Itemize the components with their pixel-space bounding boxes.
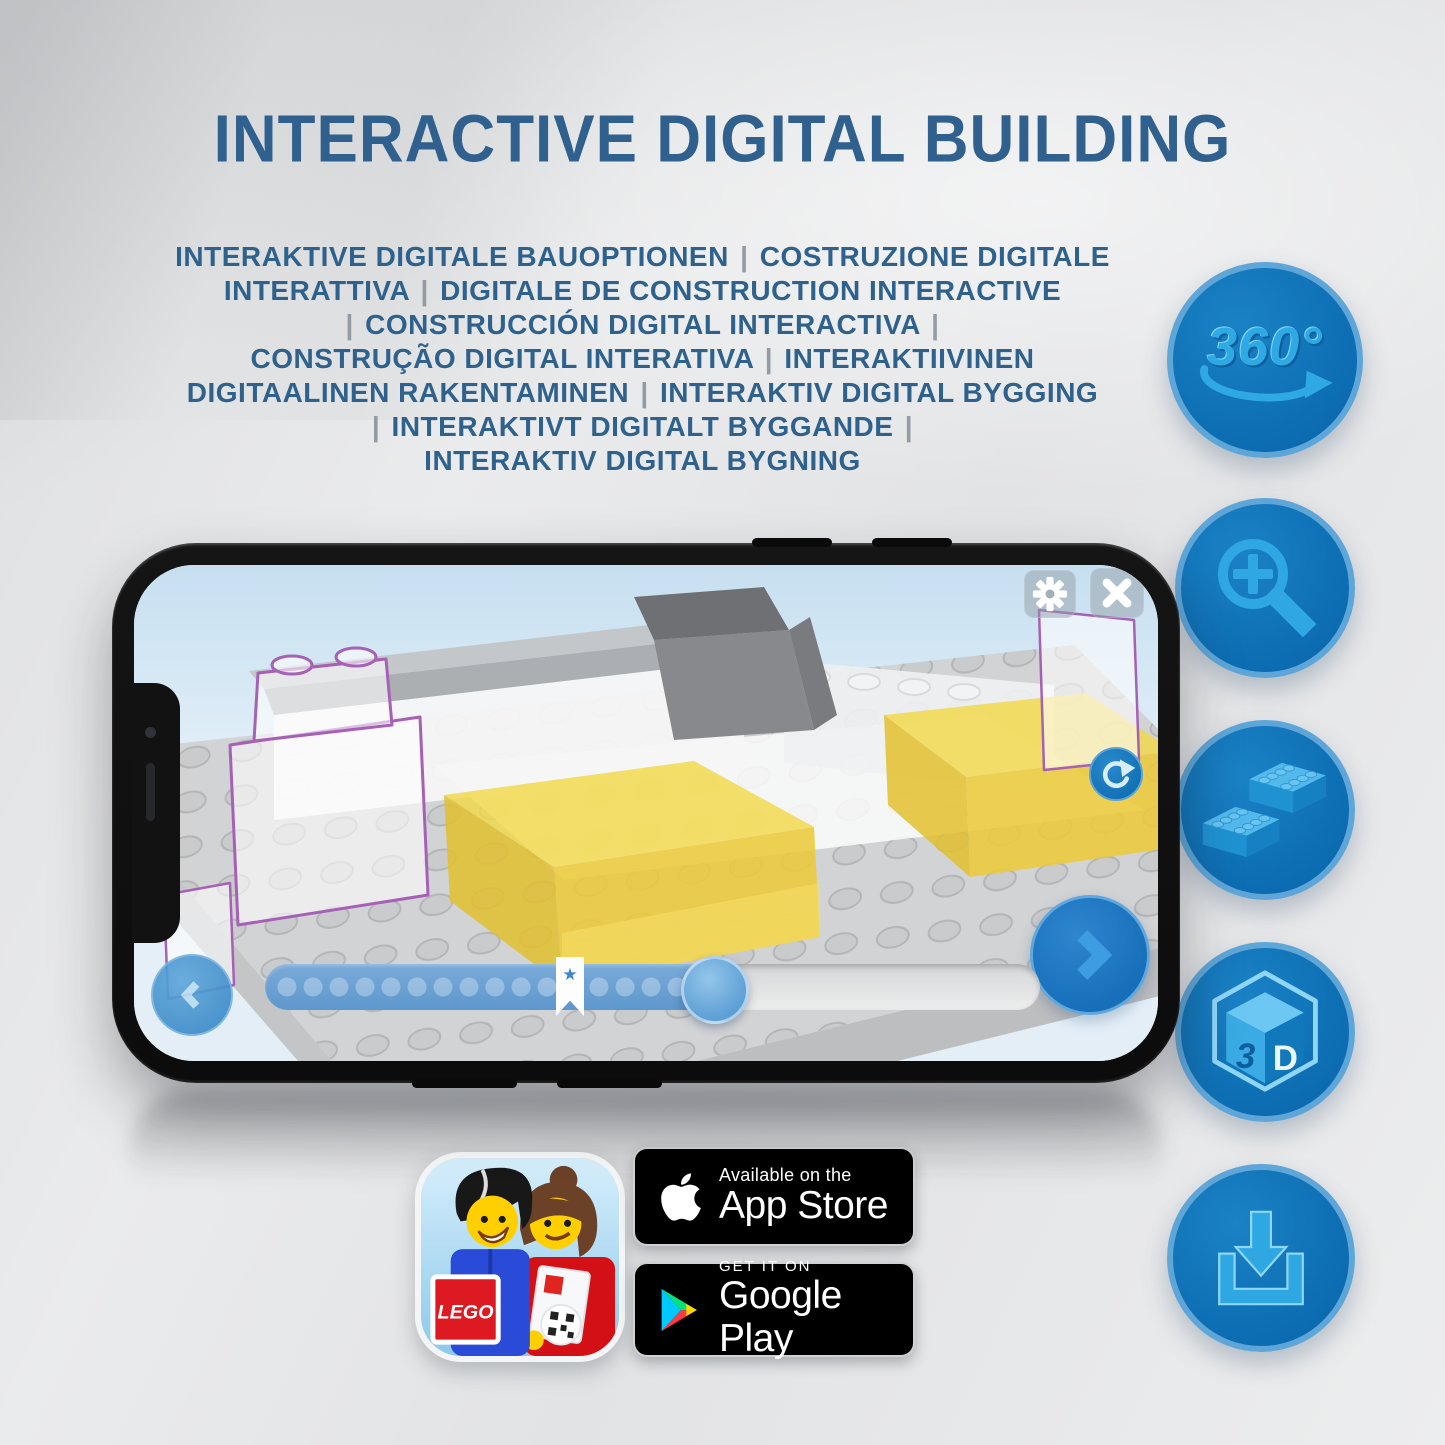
subtitle-line: DIGITAALINEN RAKENTAMINEN | INTERAKTIV D… bbox=[0, 376, 1285, 410]
3d-view-icon: 3 D bbox=[1175, 942, 1355, 1122]
subtitle-line: | INTERAKTIVT DIGITALT BYGGANDE | bbox=[0, 410, 1285, 444]
subtitle-line: INTERAKTIV DIGITAL BYGNING bbox=[0, 444, 1285, 478]
subtitle-line: INTERATTIVA | DIGITALE DE CONSTRUCTION I… bbox=[0, 274, 1285, 308]
speaker-slit bbox=[146, 763, 155, 821]
subtitle-line: CONSTRUÇÃO DIGITAL INTERATIVA | INTERAKT… bbox=[0, 342, 1285, 376]
cube-glyph: 3 D bbox=[1206, 969, 1324, 1095]
progress-fill bbox=[265, 964, 735, 1010]
page-title: INTERACTIVE DIGITAL BUILDING bbox=[0, 101, 1445, 178]
previous-step-button[interactable] bbox=[151, 954, 233, 1036]
subtitle-line: INTERAKTIVE DIGITALE BAUOPTIONEN | COSTR… bbox=[0, 240, 1285, 274]
lego-app-icon[interactable]: LEGO bbox=[415, 1152, 625, 1362]
magnifier-glyph bbox=[1205, 528, 1325, 648]
app-screen: ★ bbox=[134, 565, 1158, 1061]
cube-face-d: D bbox=[1273, 1039, 1298, 1078]
app-store-name: App Store bbox=[719, 1185, 888, 1227]
phone-notch bbox=[132, 683, 180, 943]
google-play-icon bbox=[659, 1286, 703, 1334]
camera-dot bbox=[145, 727, 156, 738]
close-icon bbox=[1100, 576, 1134, 610]
app-store-tagline: Available on the bbox=[719, 1166, 888, 1185]
lego-app-art: LEGO bbox=[421, 1158, 619, 1356]
zoom-in-icon bbox=[1175, 498, 1355, 678]
app-store-badge[interactable]: Available on the App Store bbox=[633, 1147, 915, 1246]
phone-side-button bbox=[412, 1079, 517, 1088]
subtitle-line: | CONSTRUCCIÓN DIGITAL INTERACTIVA | bbox=[0, 308, 1285, 342]
phone-side-button bbox=[872, 538, 952, 547]
close-button[interactable] bbox=[1090, 568, 1144, 618]
rotation-arrow-icon bbox=[1191, 362, 1339, 414]
next-step-button[interactable] bbox=[1030, 895, 1150, 1015]
google-play-tagline: GET IT ON bbox=[719, 1259, 913, 1275]
chevron-left-icon bbox=[170, 973, 214, 1017]
rotate-arrow-icon bbox=[1096, 754, 1136, 794]
lego-logo-text: LEGO bbox=[438, 1301, 495, 1323]
phone-side-button bbox=[752, 538, 832, 547]
download-icon bbox=[1167, 1164, 1355, 1352]
lego-app-promo: INTERACTIVE DIGITAL BUILDING INTERAKTIVE… bbox=[0, 0, 1445, 1445]
360-rotation-icon: 360° bbox=[1167, 262, 1363, 458]
settings-button[interactable] bbox=[1024, 570, 1076, 618]
apple-logo-icon bbox=[659, 1170, 703, 1224]
phone-mockup: ★ bbox=[112, 543, 1180, 1083]
gear-icon bbox=[1032, 576, 1068, 612]
step-dots bbox=[265, 964, 735, 1010]
build-progress-slider[interactable]: ★ bbox=[265, 964, 1040, 1010]
brick-icon bbox=[1175, 720, 1355, 900]
reset-rotation-button[interactable] bbox=[1089, 747, 1143, 801]
subtitle-block: INTERAKTIVE DIGITALE BAUOPTIONEN | COSTR… bbox=[0, 240, 1285, 478]
bricks-glyph bbox=[1199, 750, 1331, 870]
slider-handle[interactable] bbox=[681, 956, 749, 1024]
download-glyph bbox=[1206, 1203, 1316, 1313]
cube-face-3: 3 bbox=[1236, 1037, 1255, 1076]
chevron-right-icon bbox=[1057, 922, 1123, 988]
google-play-name: Google Play bbox=[719, 1275, 913, 1359]
phone-side-button bbox=[557, 1079, 662, 1088]
google-play-badge[interactable]: GET IT ON Google Play bbox=[633, 1262, 915, 1357]
